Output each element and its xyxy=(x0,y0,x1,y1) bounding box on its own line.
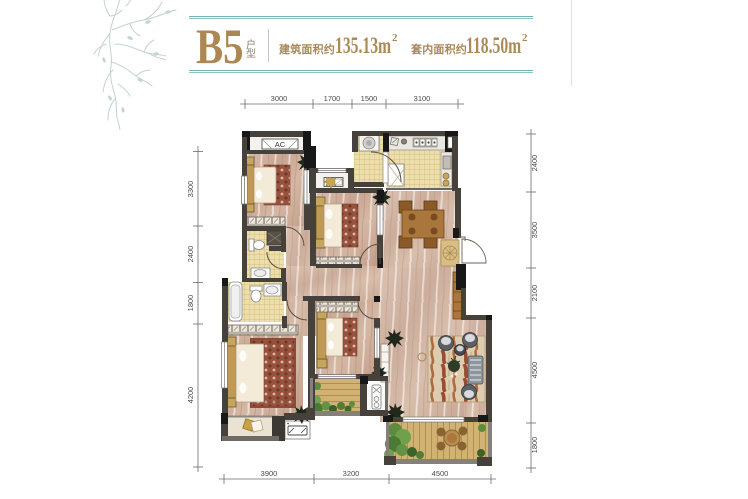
svg-text:1700: 1700 xyxy=(324,94,341,103)
svg-text:3300: 3300 xyxy=(186,181,195,198)
svg-text:1500: 1500 xyxy=(361,94,378,103)
svg-text:3000: 3000 xyxy=(271,94,288,103)
svg-text:2100: 2100 xyxy=(530,285,539,302)
svg-text:3200: 3200 xyxy=(343,469,360,478)
svg-text:4500: 4500 xyxy=(432,469,449,478)
svg-text:3500: 3500 xyxy=(530,222,539,239)
svg-text:3900: 3900 xyxy=(261,469,278,478)
svg-text:2400: 2400 xyxy=(530,155,539,172)
svg-text:AC: AC xyxy=(275,140,286,149)
svg-text:1800: 1800 xyxy=(530,437,539,454)
svg-text:1800: 1800 xyxy=(186,295,195,312)
svg-text:2400: 2400 xyxy=(186,246,195,263)
svg-text:4500: 4500 xyxy=(530,362,539,379)
svg-text:3100: 3100 xyxy=(414,94,431,103)
svg-text:4200: 4200 xyxy=(186,387,195,404)
